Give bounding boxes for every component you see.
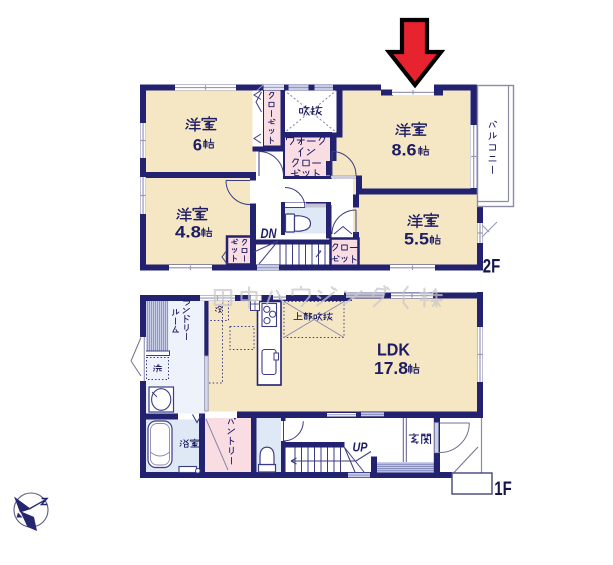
svg-text:LDK: LDK bbox=[377, 340, 410, 360]
svg-text:8.6: 8.6 bbox=[392, 142, 417, 160]
svg-text:17.8: 17.8 bbox=[374, 358, 408, 378]
svg-text:5.5: 5.5 bbox=[404, 231, 429, 249]
svg-text:4.8: 4.8 bbox=[175, 224, 201, 242]
svg-text:2F: 2F bbox=[483, 257, 501, 278]
svg-text:6: 6 bbox=[193, 137, 202, 155]
svg-text:DN: DN bbox=[261, 226, 277, 241]
svg-text:1F: 1F bbox=[494, 479, 512, 500]
svg-text:UP: UP bbox=[353, 440, 368, 455]
